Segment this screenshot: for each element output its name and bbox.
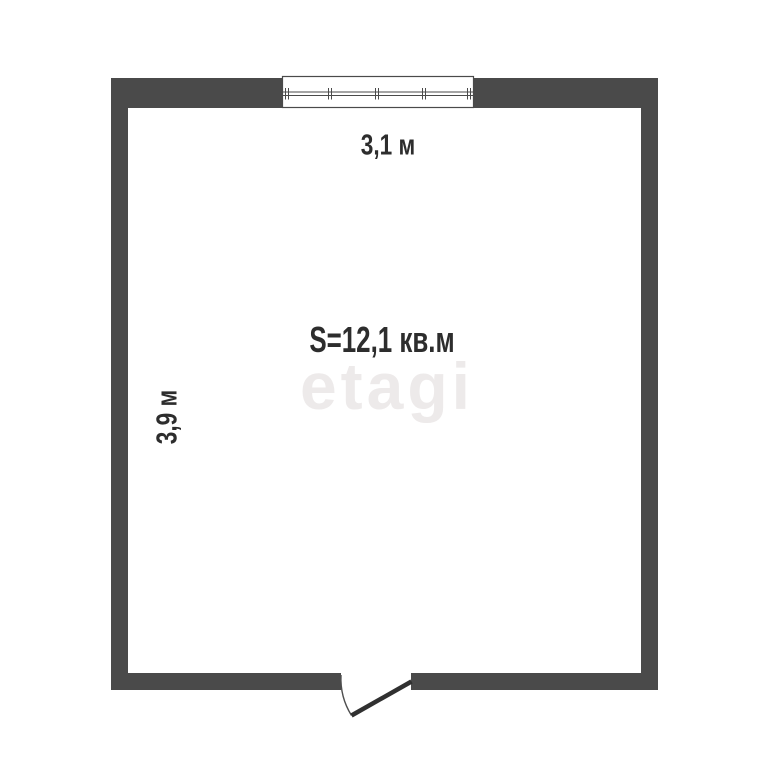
door-leaf [352, 682, 412, 716]
room-area-label: S=12,1 кв.м [281, 322, 483, 358]
wall-right [641, 78, 658, 690]
door-swing-arc [341, 675, 352, 716]
door-icon [341, 675, 412, 716]
window-icon [283, 77, 474, 108]
left-dimension-text: 3,9 м [154, 390, 183, 444]
top-dimension-text: 3,1 м [361, 132, 415, 161]
top-dimension-label: 3,1 м [353, 132, 423, 161]
wall-bottom-right-segment [411, 673, 658, 690]
left-dimension-label: 3,9 м [154, 382, 183, 452]
room-area-text: S=12,1 кв.м [309, 322, 454, 358]
wall-left [111, 78, 128, 690]
wall-bottom-left-segment [111, 673, 341, 690]
wall-top-left-segment [111, 78, 282, 108]
wall-top-right-segment [474, 78, 658, 108]
floor-plan: etagi S=12,1 кв.м 3,1 м 3,9 м [0, 0, 768, 768]
